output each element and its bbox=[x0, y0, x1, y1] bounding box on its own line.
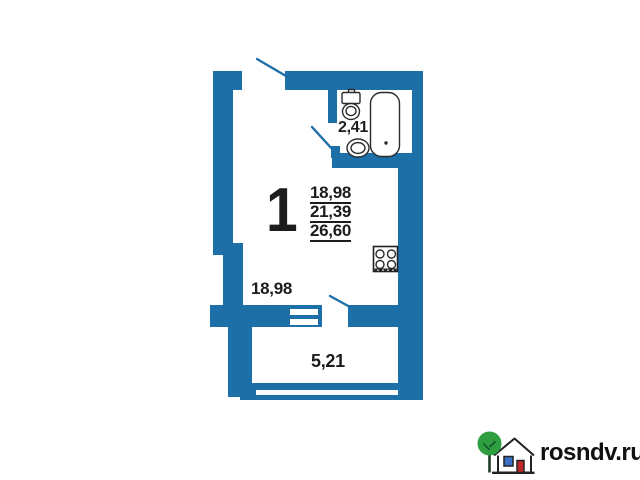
bathroom-door-line bbox=[312, 127, 333, 150]
balcony-area-label: 5,21 bbox=[311, 351, 345, 372]
room-number: 1 bbox=[266, 180, 298, 242]
logo-window bbox=[504, 457, 513, 467]
house-logo-icon bbox=[477, 430, 535, 476]
watermark-text: rosndv.ru bbox=[540, 439, 640, 467]
balcony-door-line bbox=[330, 296, 350, 307]
entrance-door-line bbox=[257, 59, 286, 76]
watermark-logo: rosndv.ru bbox=[477, 430, 640, 476]
area-table: 18,98 21,39 26,60 bbox=[310, 186, 351, 243]
logo-door bbox=[517, 461, 524, 473]
toilet-icon bbox=[342, 90, 360, 120]
bathtub-icon bbox=[371, 93, 400, 157]
room-area-label: 18,98 bbox=[251, 279, 292, 299]
sink-icon bbox=[347, 139, 369, 157]
floor-plan-image: 1 18,98 21,39 26,60 2,41 18,98 5,21 rosn… bbox=[0, 0, 640, 480]
area-total: 26,60 bbox=[310, 224, 351, 242]
stove-icon bbox=[374, 247, 398, 273]
bathroom-area-label: 2,41 bbox=[338, 119, 368, 137]
